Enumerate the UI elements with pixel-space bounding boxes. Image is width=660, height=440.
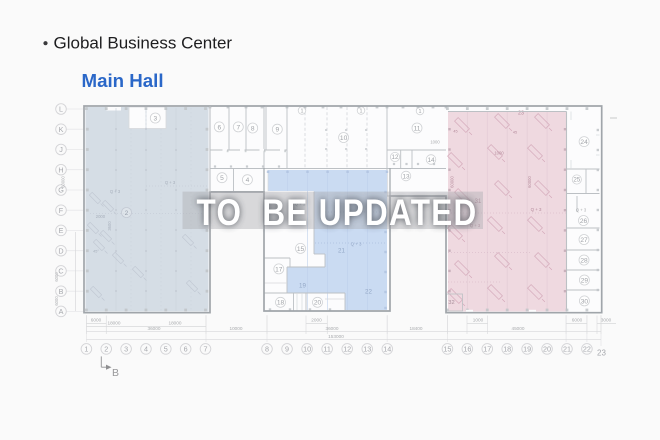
svg-text:A: A [59,307,64,316]
svg-text:19: 19 [299,283,306,290]
svg-text:4: 4 [144,344,148,353]
svg-text:153000: 153000 [328,334,344,339]
svg-text:3: 3 [124,344,128,353]
svg-text:20: 20 [314,300,322,307]
svg-text:14: 14 [383,344,391,353]
svg-text:22: 22 [365,289,372,296]
svg-text:15: 15 [443,344,451,353]
svg-text:16: 16 [463,344,471,353]
svg-text:10: 10 [340,135,348,142]
svg-text:18400: 18400 [409,326,422,331]
svg-text:45°: 45° [93,250,99,254]
svg-text:23: 23 [597,349,606,358]
svg-text:1000: 1000 [494,151,504,156]
svg-text:E: E [59,226,64,235]
svg-text:5: 5 [220,175,224,182]
svg-text:1000: 1000 [473,317,484,322]
svg-text:J: J [59,145,63,154]
svg-text:8: 8 [251,125,255,132]
svg-text:18: 18 [503,344,511,353]
svg-text:18000: 18000 [168,321,181,326]
svg-text:6000: 6000 [54,296,59,306]
svg-text:60000: 60000 [450,176,455,188]
svg-text:TO BE UPDATED: TO BE UPDATED [197,193,478,234]
svg-text:3000: 3000 [601,317,612,322]
svg-text:15: 15 [297,246,305,253]
svg-text:24: 24 [580,139,588,146]
svg-text:4: 4 [246,177,250,184]
svg-text:22: 22 [583,344,591,353]
svg-text:13: 13 [402,173,410,180]
svg-text:3600: 3600 [107,221,112,231]
svg-text:7: 7 [236,124,240,131]
svg-text:11: 11 [323,344,330,353]
svg-text:17: 17 [483,344,491,353]
svg-text:Q + 3: Q + 3 [351,242,362,247]
svg-text:H: H [58,165,63,174]
svg-text:9: 9 [275,127,279,134]
svg-text:6000: 6000 [54,272,59,282]
svg-text:17: 17 [275,266,283,273]
svg-text:30: 30 [581,298,589,305]
svg-text:7: 7 [204,344,208,353]
svg-text:21: 21 [563,344,571,353]
svg-text:10000: 10000 [229,326,242,331]
svg-text:Q + 3: Q + 3 [531,207,542,212]
svg-text:10: 10 [303,344,311,353]
svg-text:32: 32 [448,300,454,306]
svg-text:6: 6 [217,124,221,131]
svg-text:36000: 36000 [147,326,160,331]
svg-text:21: 21 [338,248,345,255]
svg-text:Main Hall: Main Hall [82,70,164,91]
svg-text:12: 12 [392,154,399,161]
svg-text:20: 20 [543,344,551,353]
svg-text:1: 1 [301,108,304,114]
svg-text:L: L [59,105,63,114]
svg-text:45000: 45000 [511,326,524,331]
svg-text:2000: 2000 [311,317,322,322]
svg-text:6: 6 [184,344,188,353]
svg-text:B: B [112,367,119,379]
svg-text:1000: 1000 [430,140,440,145]
svg-text:D: D [58,246,63,255]
svg-text:K: K [59,125,64,134]
svg-text:18: 18 [277,300,285,307]
svg-text:C: C [58,266,63,275]
svg-text:26: 26 [580,218,588,225]
svg-text:1: 1 [84,344,88,353]
svg-text:18000: 18000 [107,321,120,326]
svg-text:29: 29 [581,277,589,284]
svg-text:27: 27 [580,237,588,244]
svg-text:6000: 6000 [91,317,102,322]
svg-text:1: 1 [419,109,422,115]
svg-text:45: 45 [453,130,457,134]
svg-text:25: 25 [573,177,580,184]
svg-text:Q + 3: Q + 3 [576,208,587,213]
svg-text:9: 9 [285,344,289,353]
svg-text:2: 2 [104,344,108,353]
svg-text:19: 19 [523,344,531,353]
svg-text:Q + 3: Q + 3 [110,189,121,194]
svg-text:36000: 36000 [325,326,338,331]
svg-text:B: B [59,287,64,296]
svg-text:45: 45 [513,131,517,135]
svg-text:14: 14 [427,157,435,164]
svg-text:2000: 2000 [96,214,106,219]
svg-text:2: 2 [125,210,129,217]
svg-text:60000: 60000 [527,176,532,188]
svg-text:1: 1 [360,108,363,114]
svg-text:5: 5 [164,344,168,353]
svg-text:Q + 3: Q + 3 [165,180,176,185]
svg-text:3: 3 [153,115,157,122]
svg-text:11: 11 [414,125,421,132]
svg-text:60000: 60000 [61,176,66,188]
svg-text:6000: 6000 [572,317,583,322]
svg-text:13: 13 [363,344,371,353]
svg-text:28: 28 [580,257,588,264]
svg-text:8: 8 [265,344,269,353]
svg-text:12: 12 [343,344,351,353]
svg-text:F: F [59,206,64,215]
svg-text:Global Business Center: Global Business Center [54,33,233,52]
